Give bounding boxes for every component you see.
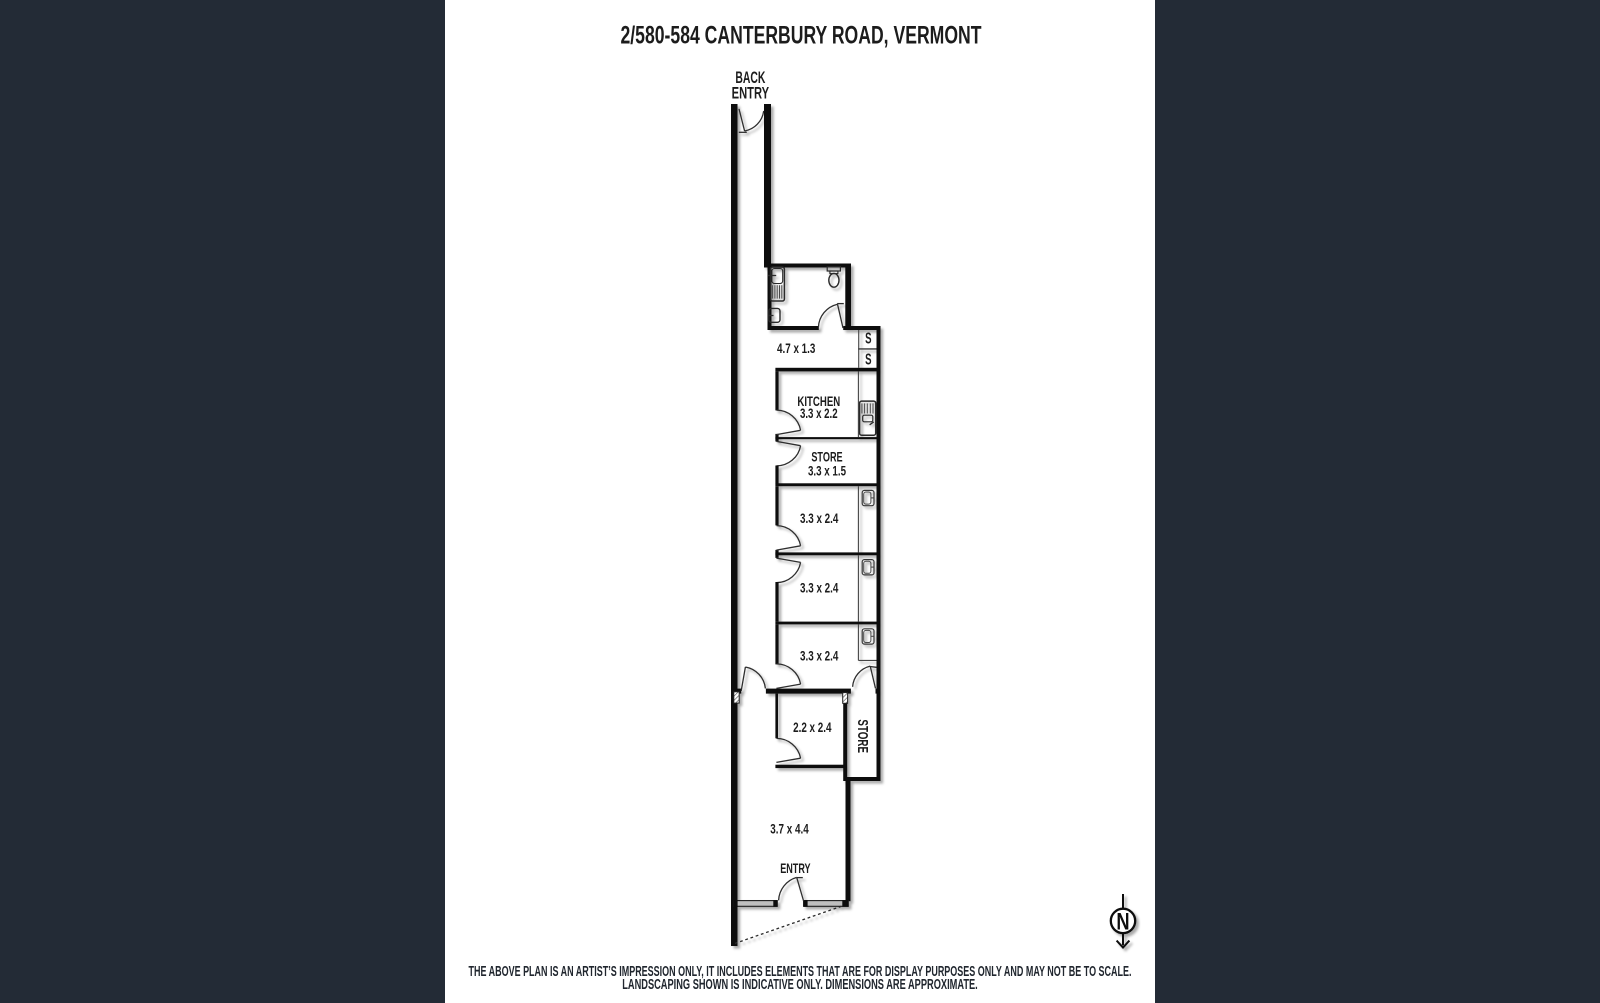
svg-text:3.3 x 2.4: 3.3 x 2.4 (800, 581, 839, 596)
svg-text:3.3 x 1.5: 3.3 x 1.5 (808, 463, 846, 478)
svg-text:STORE: STORE (854, 719, 871, 753)
svg-text:4.7 x 1.3: 4.7 x 1.3 (777, 341, 816, 356)
svg-text:LANDSCAPING SHOWN IS INDICATIV: LANDSCAPING SHOWN IS INDICATIVE ONLY. DI… (622, 977, 978, 993)
svg-text:3.3 x 2.2: 3.3 x 2.2 (800, 406, 838, 421)
svg-text:S: S (865, 350, 872, 368)
svg-text:2.2 x 2.4: 2.2 x 2.4 (793, 720, 832, 735)
svg-text:S: S (865, 329, 872, 347)
svg-text:ENTRY: ENTRY (732, 84, 770, 103)
svg-text:3.7 x 4.4: 3.7 x 4.4 (770, 822, 809, 837)
svg-text:3.3 x 2.4: 3.3 x 2.4 (800, 649, 839, 664)
svg-text:ENTRY: ENTRY (780, 860, 811, 876)
svg-text:STORE: STORE (811, 449, 842, 464)
svg-text:N: N (1116, 908, 1129, 935)
svg-text:2/580-584 CANTERBURY ROAD, VER: 2/580-584 CANTERBURY ROAD, VERMONT (621, 21, 982, 49)
svg-text:3.3 x 2.4: 3.3 x 2.4 (800, 511, 839, 526)
